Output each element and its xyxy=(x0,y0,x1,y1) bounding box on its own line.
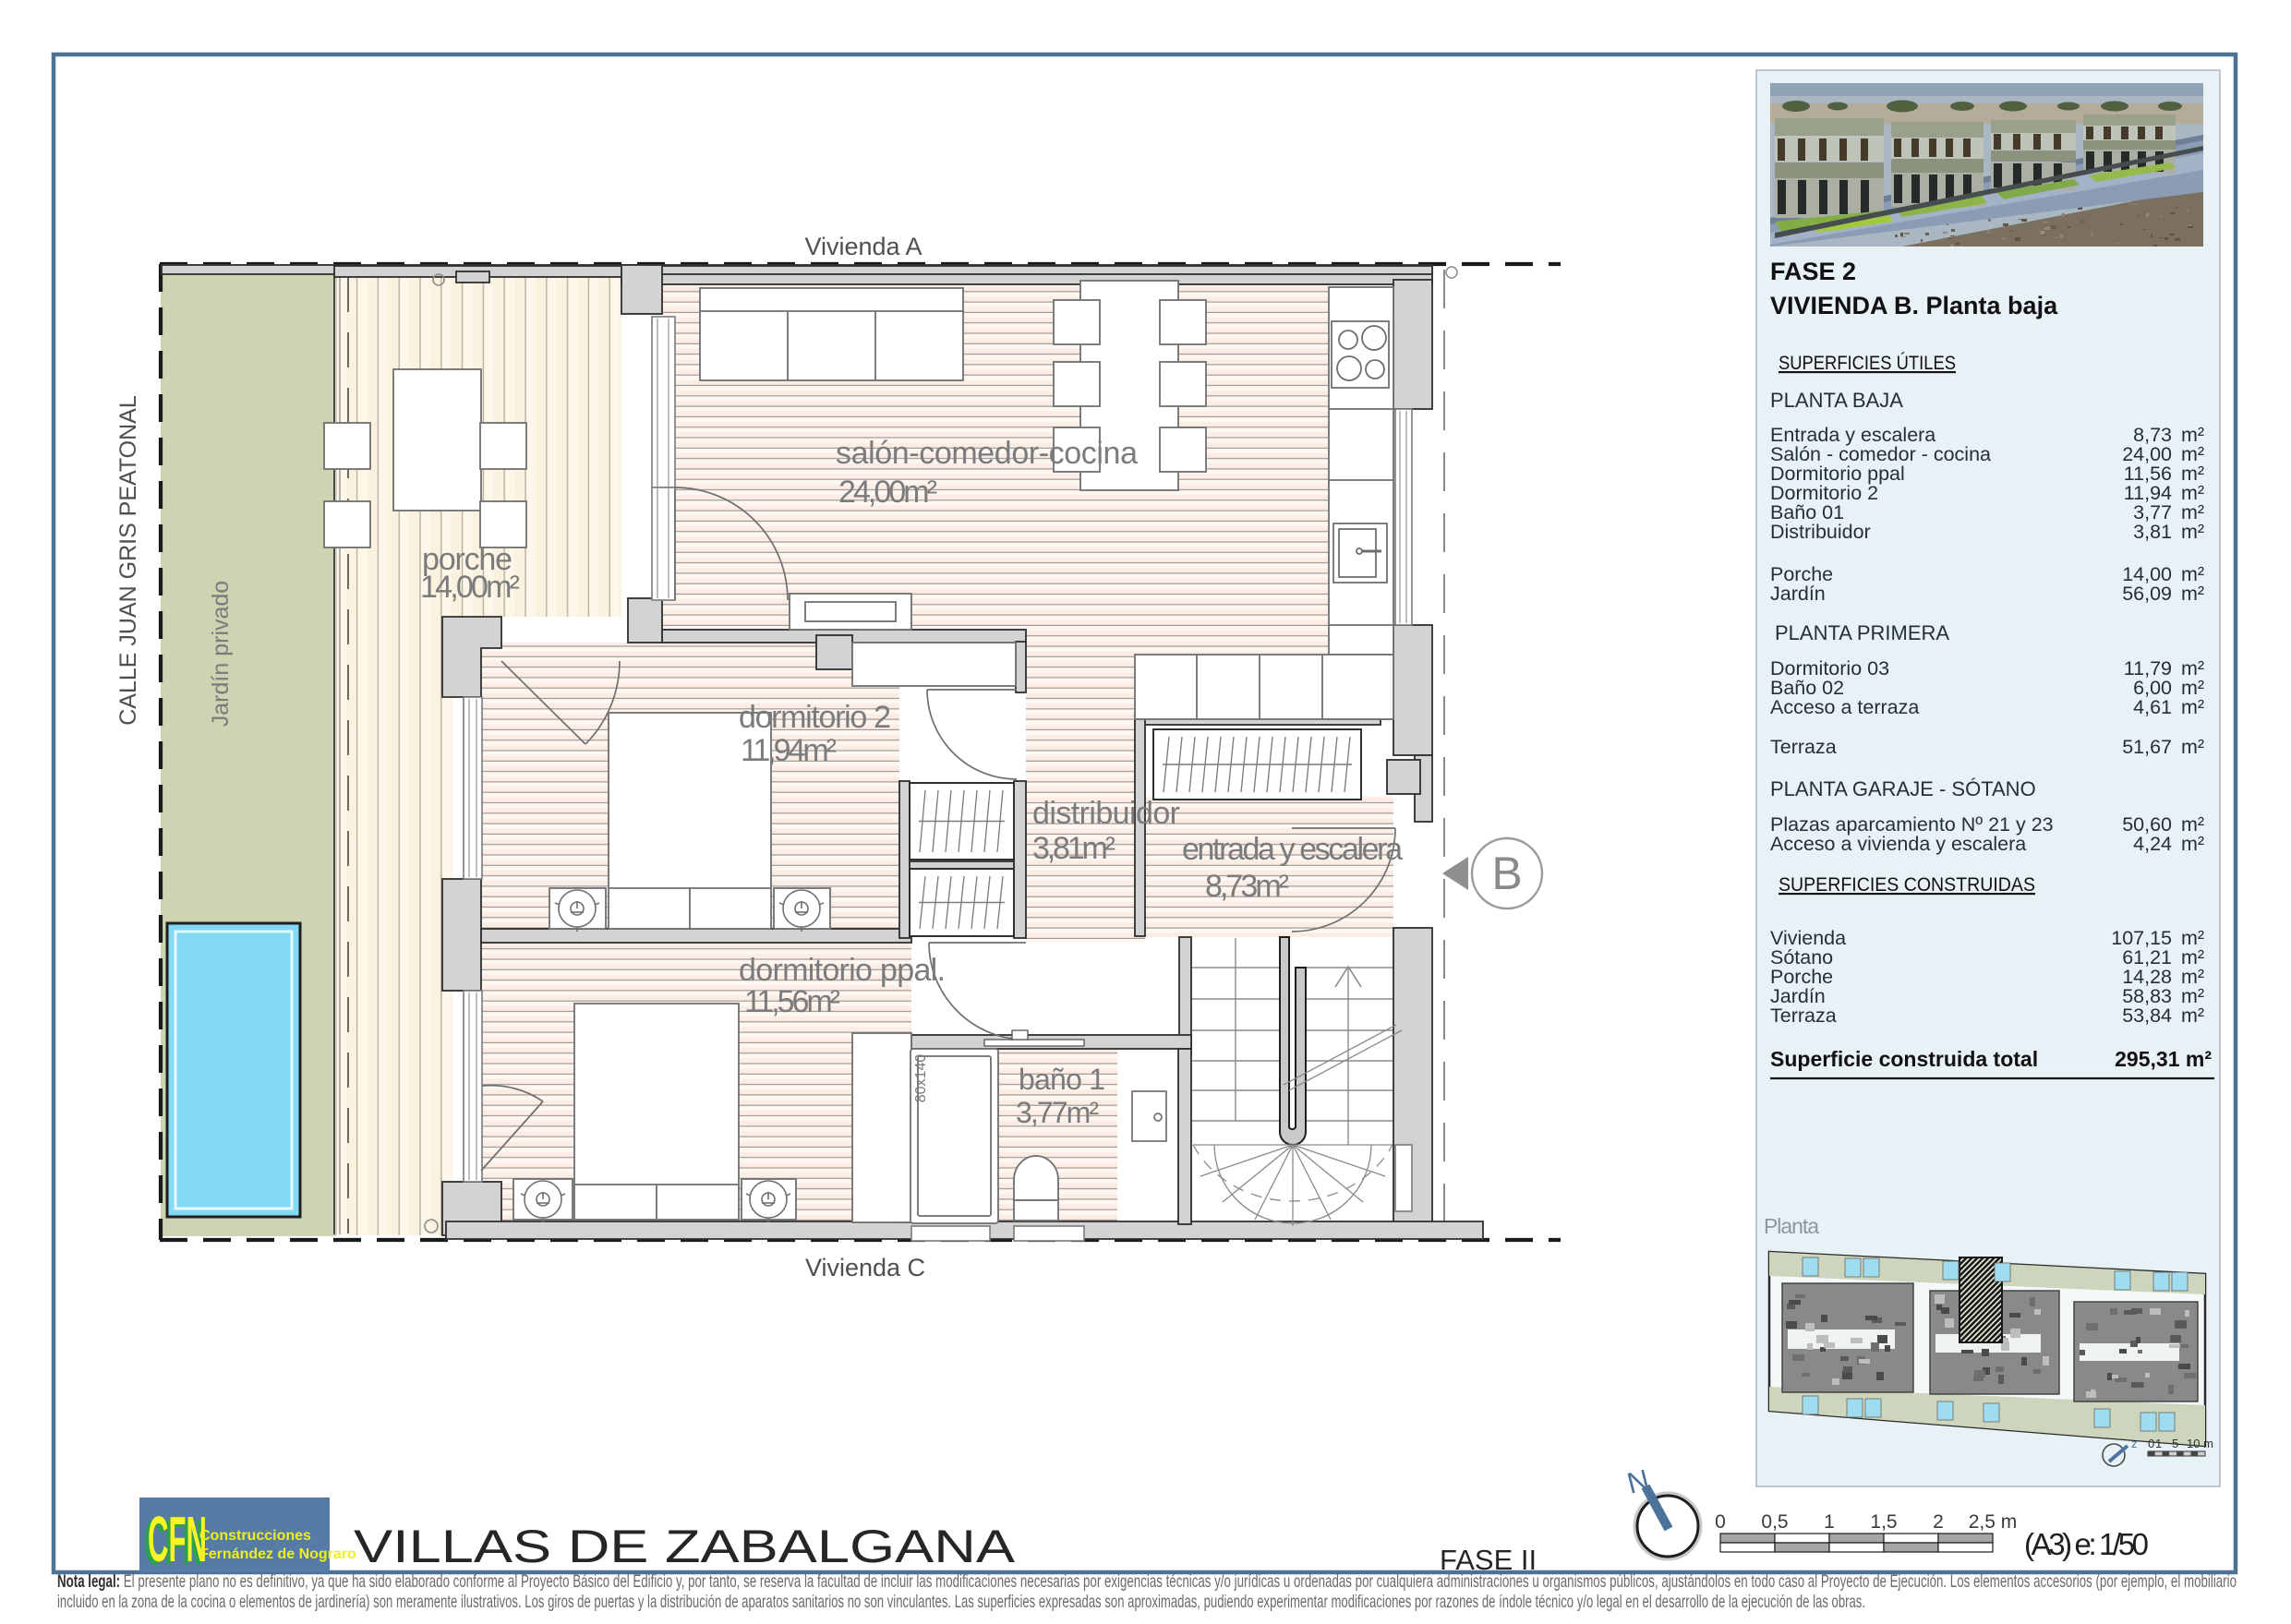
svg-text:Terraza: Terraza xyxy=(1770,736,1837,758)
svg-text:B: B xyxy=(1491,848,1522,899)
svg-text:FASE 2: FASE 2 xyxy=(1770,258,1856,285)
svg-text:0,5: 0,5 xyxy=(1761,1511,1788,1533)
svg-text:24,00m²: 24,00m² xyxy=(838,475,937,510)
svg-text:PLANTA BAJA: PLANTA BAJA xyxy=(1770,389,1903,412)
svg-text:14,00m²: 14,00m² xyxy=(420,570,520,605)
svg-text:295,31 m²: 295,31 m² xyxy=(2115,1047,2212,1071)
svg-text:VIVIENDA B. Planta baja: VIVIENDA B. Planta baja xyxy=(1770,292,2058,319)
svg-text:salón-comedor-cocina: salón-comedor-cocina xyxy=(836,436,1138,471)
svg-text:SUPERFICIES ÚTILES: SUPERFICIES ÚTILES xyxy=(1779,351,1956,374)
svg-text:SUPERFICIES CONSTRUIDAS: SUPERFICIES CONSTRUIDAS xyxy=(1779,873,2035,896)
svg-text:Acceso a terraza: Acceso a terraza xyxy=(1770,696,1919,718)
svg-text:11,56m²: 11,56m² xyxy=(744,984,840,1019)
svg-text:Fernández de Nograro: Fernández de Nograro xyxy=(199,1546,356,1562)
svg-text:Jardín privado: Jardín privado xyxy=(208,581,234,727)
svg-text:3,81m²: 3,81m² xyxy=(1032,831,1115,866)
svg-text:PLANTA PRIMERA: PLANTA PRIMERA xyxy=(1775,621,1949,644)
svg-text:Jardín: Jardín xyxy=(1770,583,1826,605)
svg-text:1,5: 1,5 xyxy=(1870,1511,1897,1533)
svg-text:56,09: 56,09 xyxy=(2122,583,2172,605)
svg-text:0: 0 xyxy=(2148,1437,2154,1450)
svg-text:4,61: 4,61 xyxy=(2133,696,2172,718)
svg-text:CALLE JUAN GRIS PEATONAL: CALLE JUAN GRIS PEATONAL xyxy=(115,395,141,726)
svg-text:CFN: CFN xyxy=(148,1503,207,1575)
svg-text:51,67: 51,67 xyxy=(2122,736,2172,758)
svg-text:FASE II: FASE II xyxy=(1440,1544,1537,1576)
svg-text:m²: m² xyxy=(2181,1004,2204,1027)
svg-text:53,84: 53,84 xyxy=(2122,1004,2172,1027)
svg-text:0: 0 xyxy=(1715,1511,1726,1533)
svg-text:m²: m² xyxy=(2181,736,2204,758)
svg-text:dormitorio 2: dormitorio 2 xyxy=(739,700,891,735)
svg-text:10 m: 10 m xyxy=(2187,1437,2213,1450)
svg-text:baño 1: baño 1 xyxy=(1019,1063,1105,1096)
svg-text:Construcciones: Construcciones xyxy=(199,1528,311,1544)
svg-text:Nota legal: El presente plano: Nota legal: El presente plano no es defi… xyxy=(57,1571,2237,1592)
svg-text:2: 2 xyxy=(1933,1511,1944,1533)
svg-text:Terraza: Terraza xyxy=(1770,1004,1837,1027)
svg-text:(A3) e: 1/50: (A3) e: 1/50 xyxy=(2024,1527,2149,1561)
svg-text:1: 1 xyxy=(2155,1437,2162,1450)
svg-text:Vivienda C: Vivienda C xyxy=(805,1254,925,1281)
svg-text:80x140: 80x140 xyxy=(913,1054,929,1103)
svg-text:11,94m²: 11,94m² xyxy=(741,733,837,768)
svg-text:distribuidor: distribuidor xyxy=(1032,796,1180,831)
svg-text:VILLAS DE ZABALGANA: VILLAS DE ZABALGANA xyxy=(354,1521,1016,1572)
svg-text:2,5 m: 2,5 m xyxy=(1969,1511,2018,1533)
svg-text:8,73m²: 8,73m² xyxy=(1205,869,1289,904)
svg-text:entrada y escalera: entrada y escalera xyxy=(1182,832,1403,867)
svg-text:Vivienda A: Vivienda A xyxy=(804,233,922,260)
svg-text:1: 1 xyxy=(1824,1511,1835,1533)
svg-text:3,77m²: 3,77m² xyxy=(1016,1096,1099,1129)
svg-text:incluido en la zona de la coci: incluido en la zona de la cocina o eleme… xyxy=(57,1592,1865,1612)
svg-text:Planta: Planta xyxy=(1764,1214,1819,1238)
svg-text:Acceso a vivienda y escalera: Acceso a vivienda y escalera xyxy=(1770,833,2026,855)
svg-text:5: 5 xyxy=(2172,1437,2178,1450)
svg-text:PLANTA GARAJE - SÓTANO: PLANTA GARAJE - SÓTANO xyxy=(1770,777,2036,800)
svg-text:m²: m² xyxy=(2181,521,2204,543)
svg-text:3,81: 3,81 xyxy=(2133,521,2172,543)
svg-text:Superficie construida total: Superficie construida total xyxy=(1770,1047,2038,1071)
svg-text:Distribuidor: Distribuidor xyxy=(1770,521,1871,543)
svg-text:dormitorio ppal.: dormitorio ppal. xyxy=(739,953,946,988)
svg-text:4,24: 4,24 xyxy=(2133,833,2172,855)
svg-text:z: z xyxy=(2131,1437,2138,1450)
svg-text:m²: m² xyxy=(2181,583,2204,605)
svg-text:m²: m² xyxy=(2181,696,2204,718)
svg-text:m²: m² xyxy=(2181,833,2204,855)
